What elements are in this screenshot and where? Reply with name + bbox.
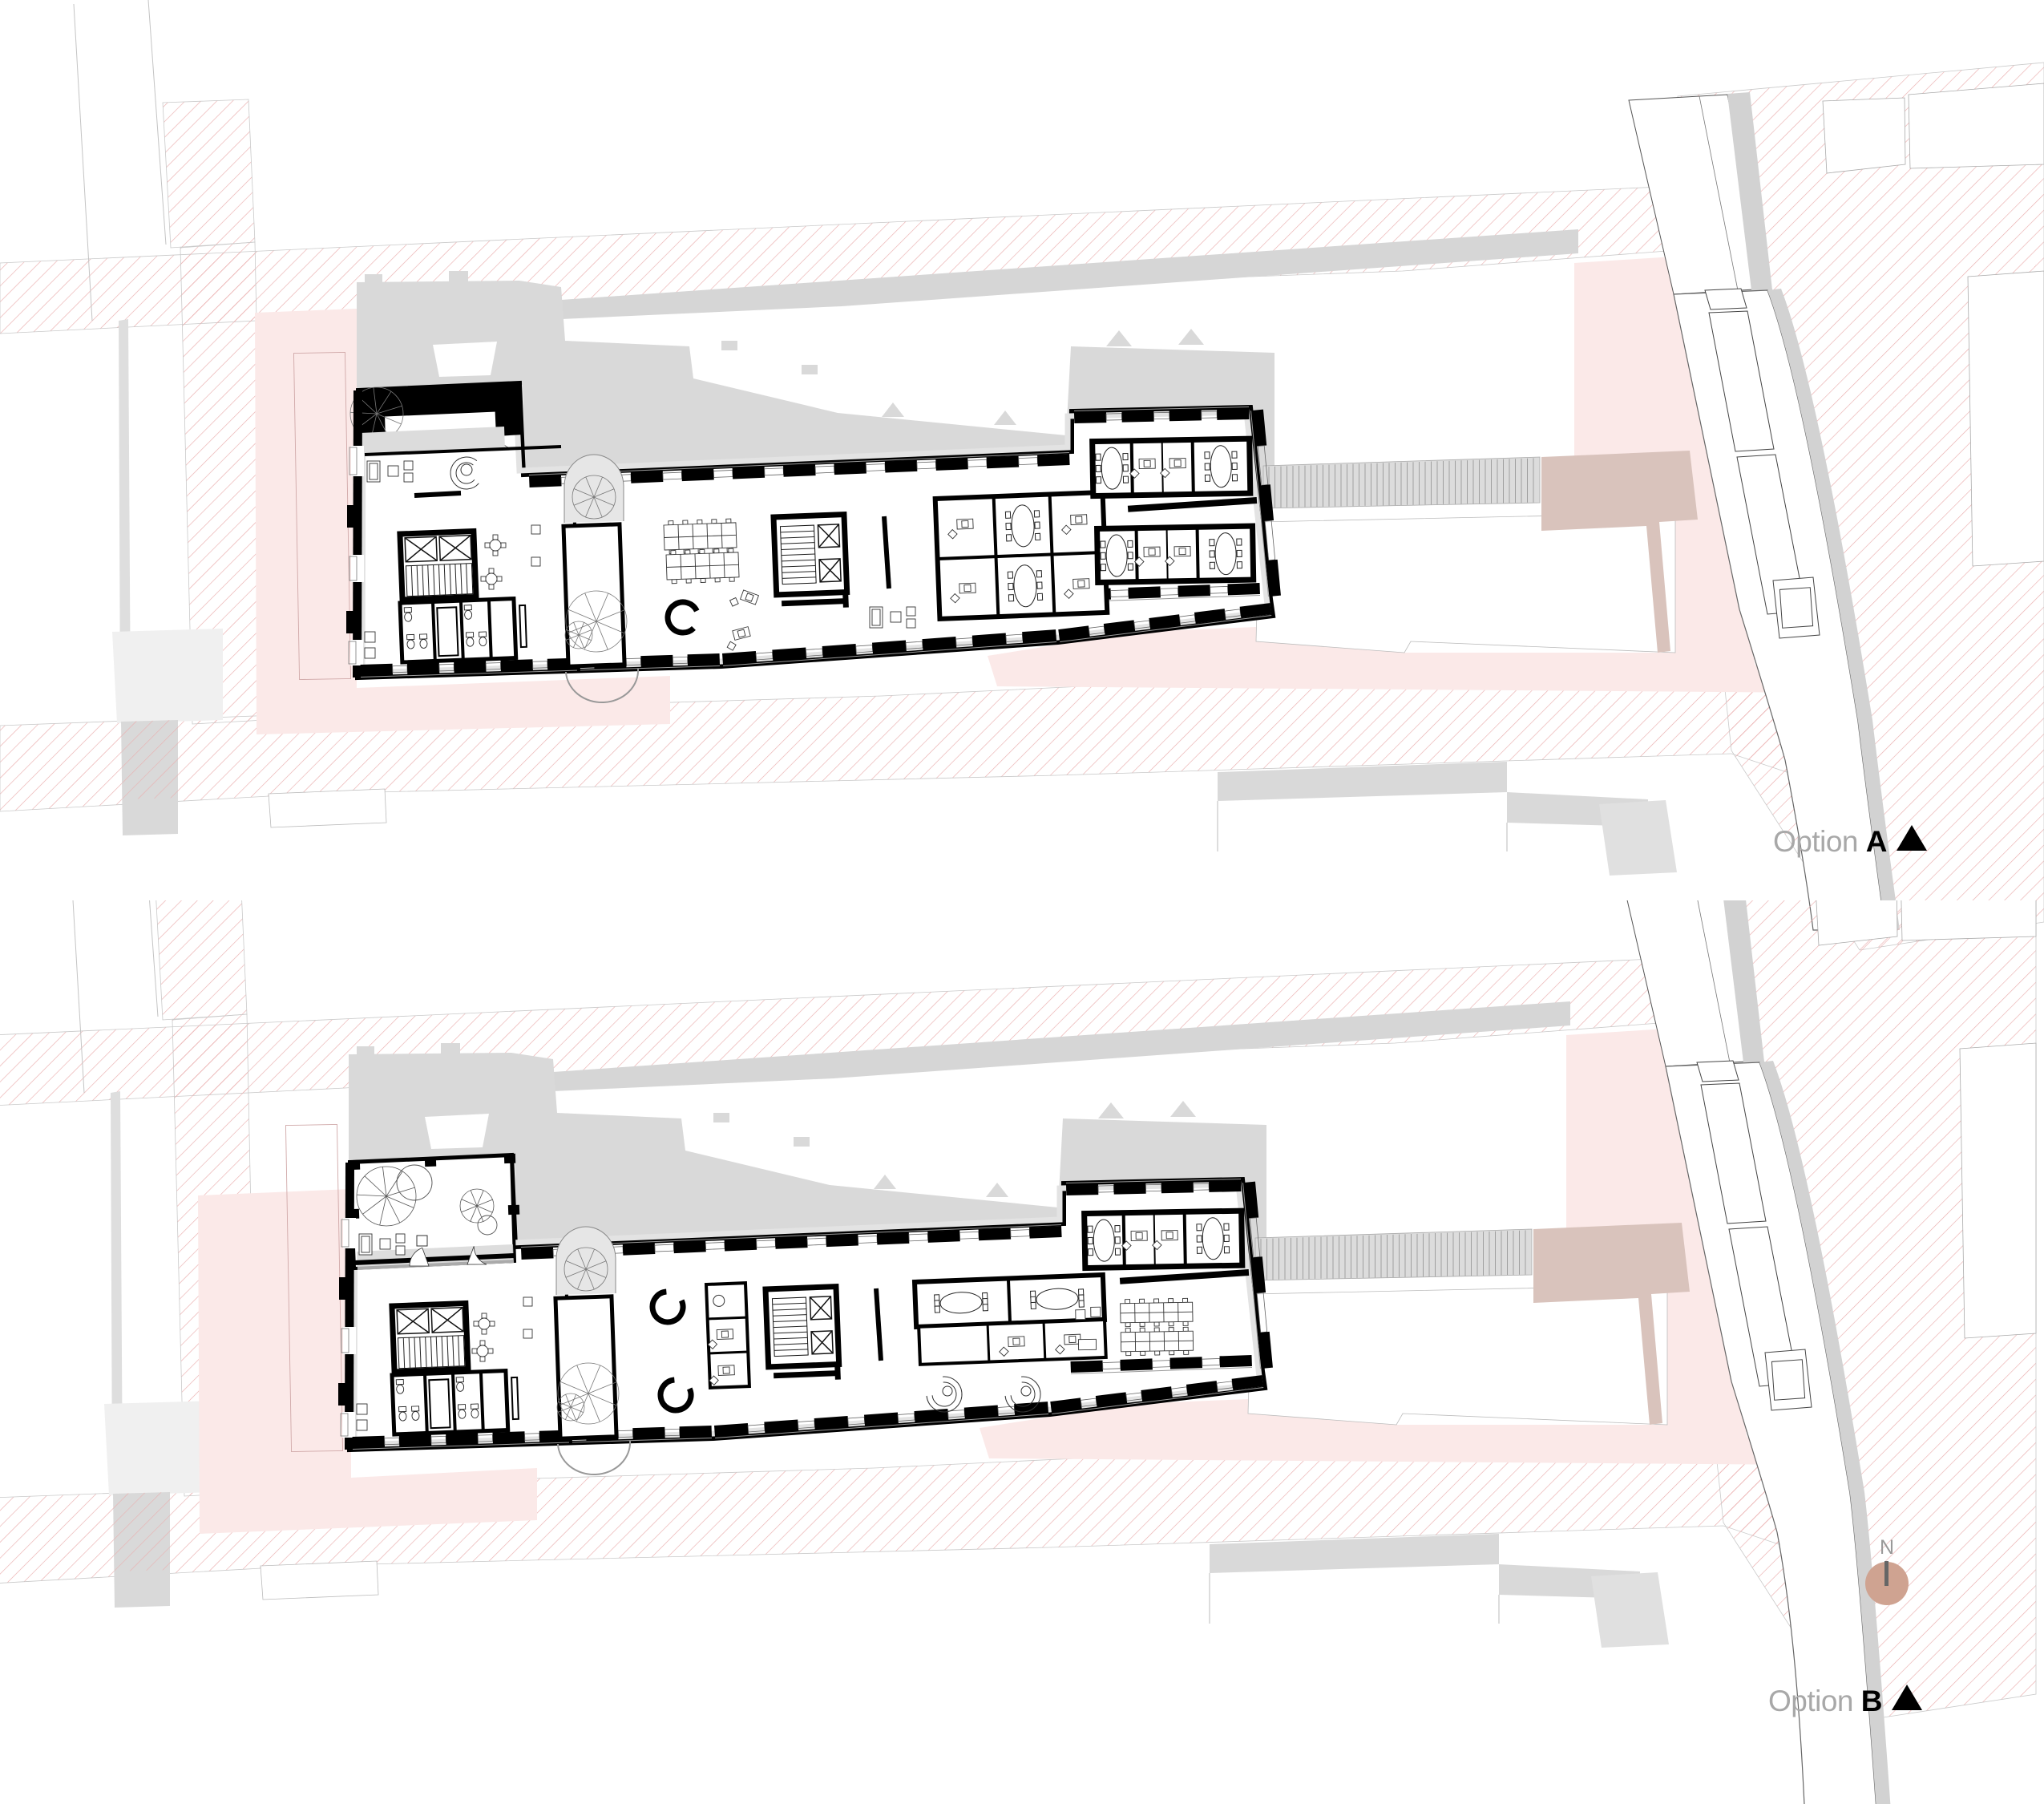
svg-text:N: N	[1880, 1536, 1894, 1559]
svg-text:Option B: Option B	[1768, 1685, 1882, 1717]
svg-text:Option A: Option A	[1773, 825, 1887, 858]
